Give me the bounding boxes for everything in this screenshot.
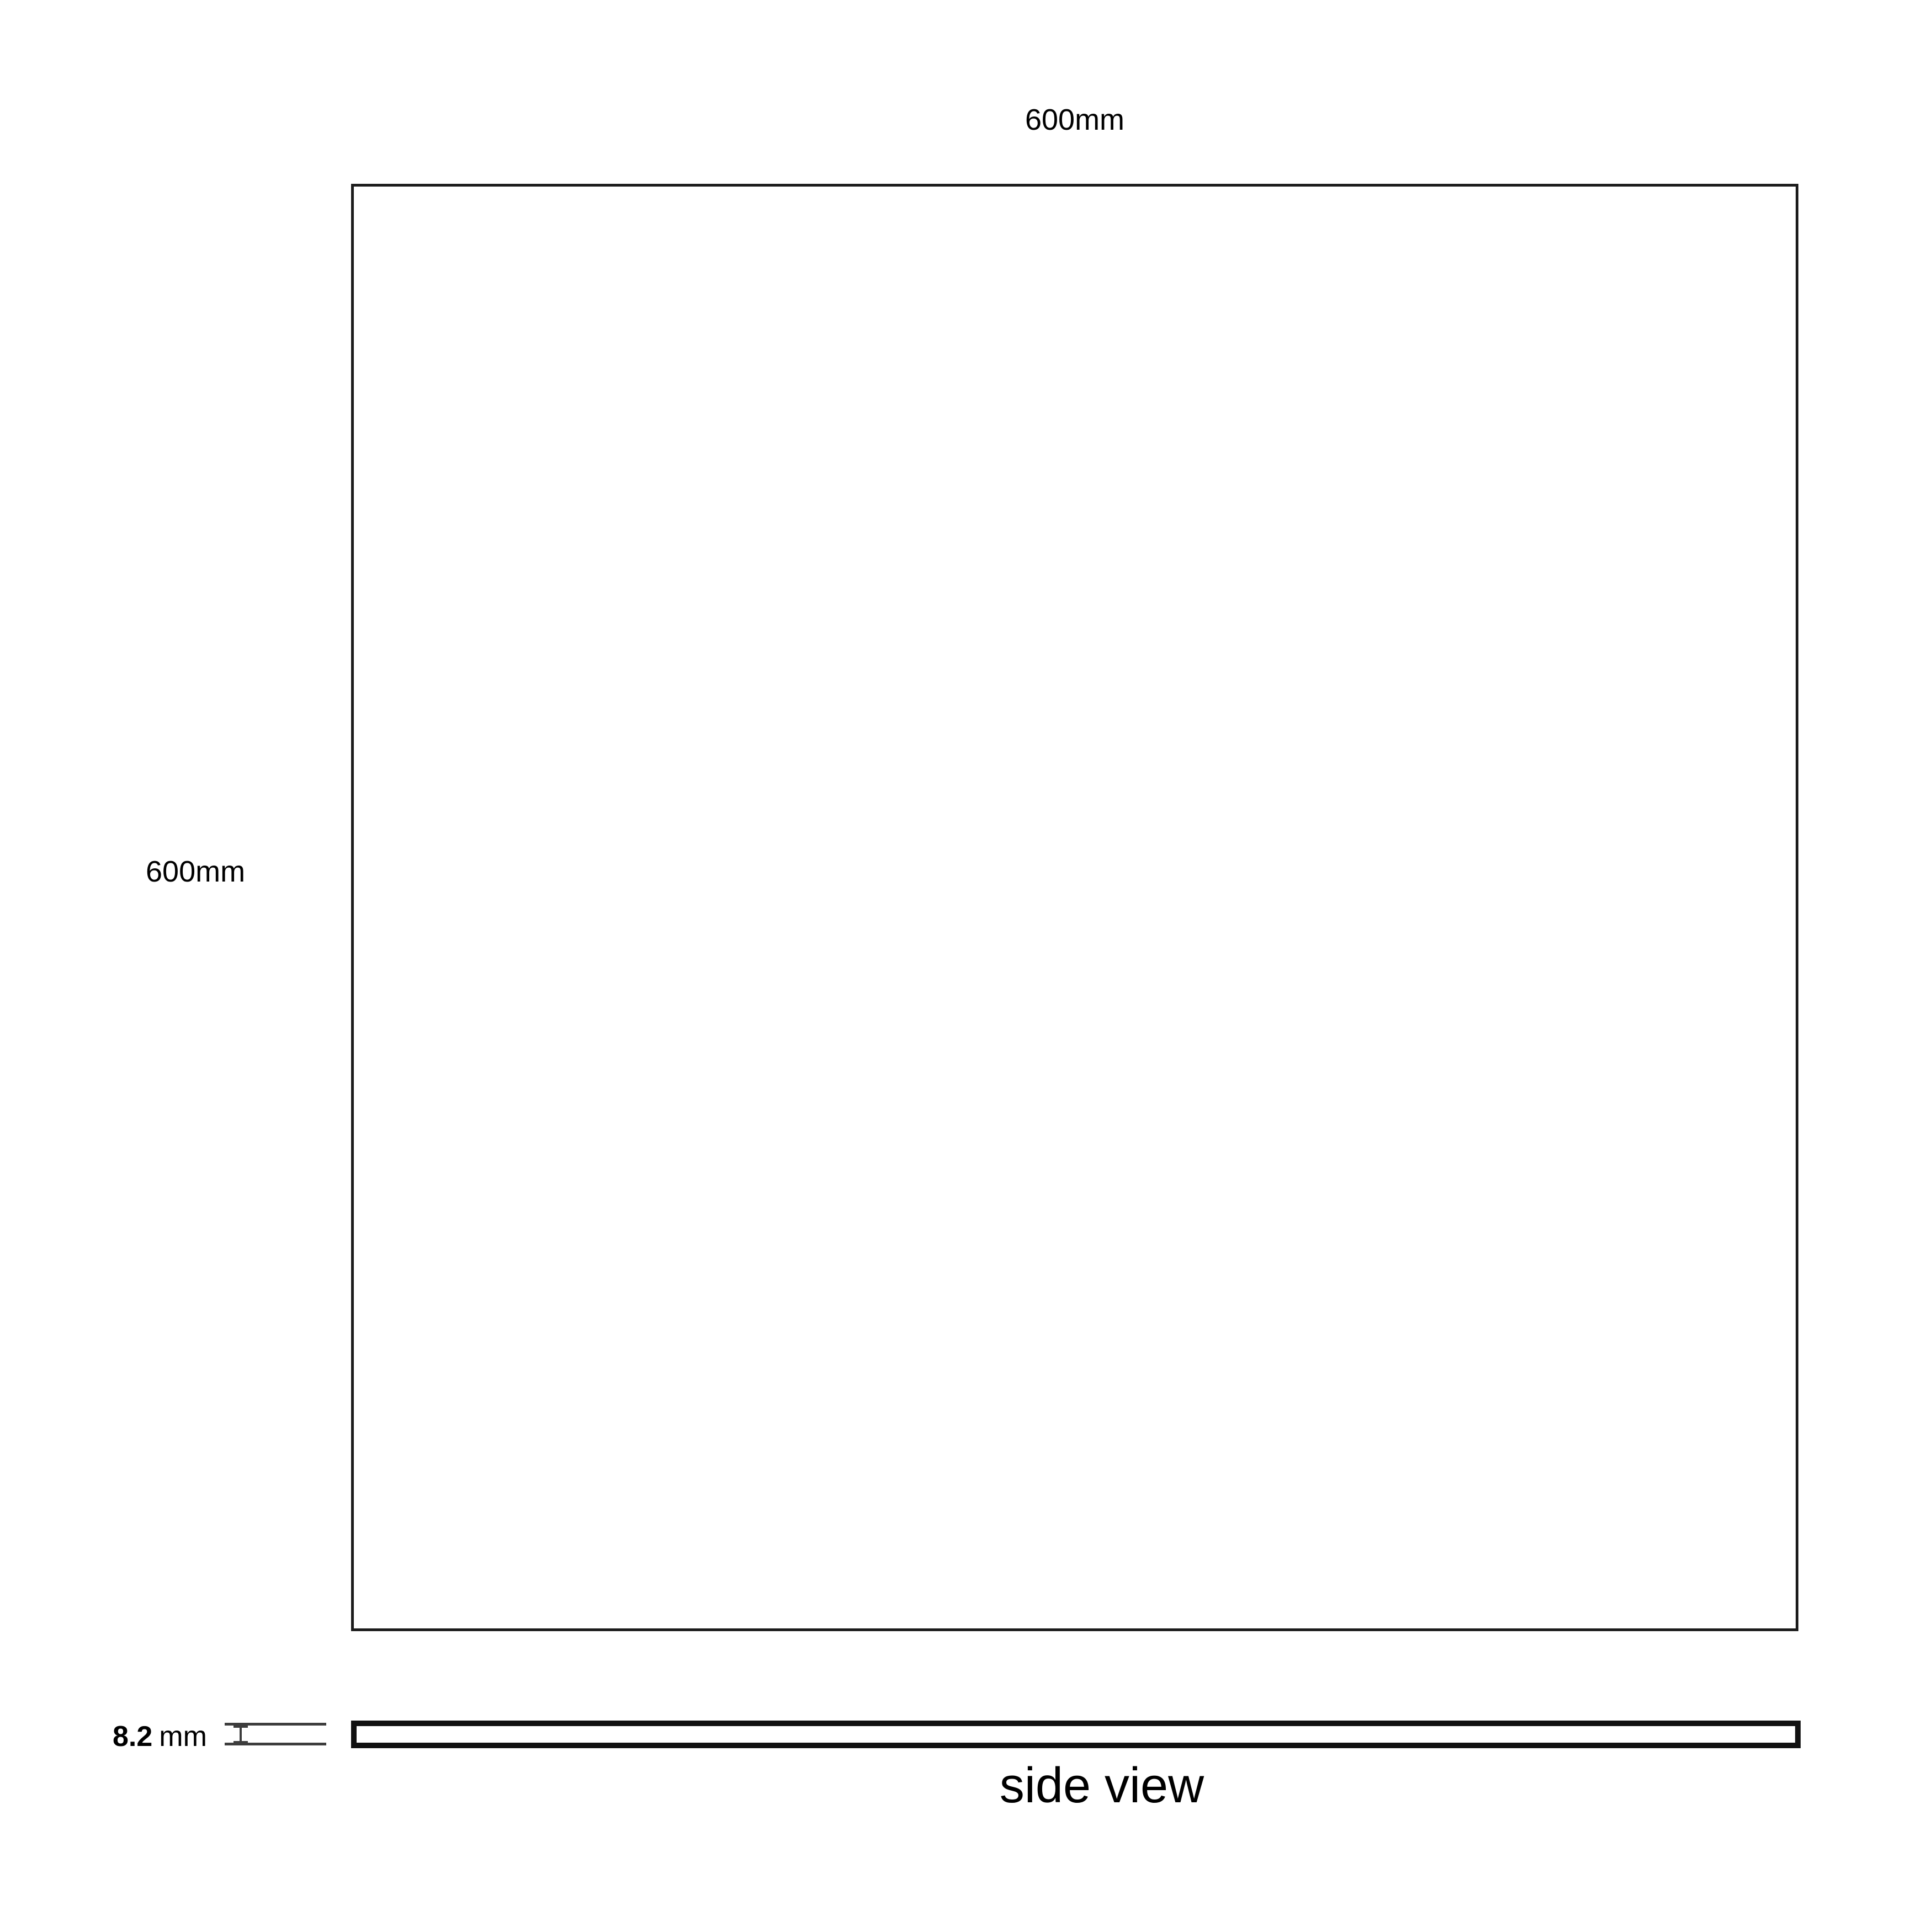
dimension-diagram: 600mm 600mm 8.2mm side view [0, 0, 1932, 1932]
top-width-label: 600mm [351, 105, 1798, 135]
dimension-tick-cap-bottom [233, 1741, 248, 1743]
dimension-tick [240, 1727, 242, 1742]
side-view-caption: side view [881, 1761, 1323, 1811]
thickness-label: 8.2mm [113, 1722, 207, 1751]
left-height-label: 600mm [146, 857, 245, 887]
thickness-value: 8.2 [113, 1721, 152, 1753]
thickness-unit: mm [159, 1721, 207, 1753]
tile-side-profile [351, 1721, 1801, 1748]
tile-top-view-outline [351, 184, 1798, 1631]
dimension-tick-cap-top [233, 1726, 248, 1728]
